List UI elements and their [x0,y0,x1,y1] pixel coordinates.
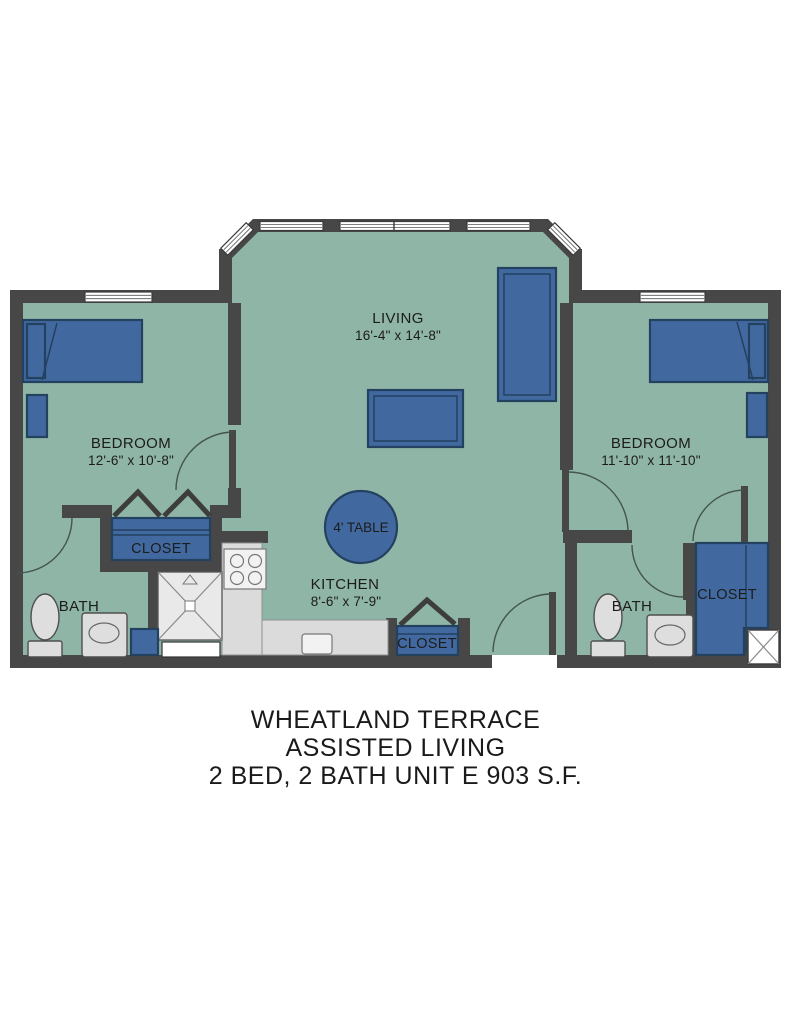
floor-plan-page: LIVING 16'-4" x 14'-8" BEDROOM 12'-6" x … [0,0,791,1024]
entry-threshold [492,655,557,672]
toilet-icon [28,594,62,657]
left-bath-door-leaf [10,518,17,575]
living-label: LIVING [372,310,424,327]
right-bath-door-leaf [683,543,690,600]
right-closet-label: CLOSET [697,587,757,603]
sofa [498,268,556,401]
right-bedroom-window [640,292,705,302]
right-bedroom-door-leaf [562,470,569,532]
property-type: ASSISTED LIVING [0,734,791,762]
left-nightstand [27,395,47,437]
unit-summary: 2 BED, 2 BATH UNIT E 903 S.F. [0,762,791,790]
shower-icon [158,572,222,640]
stove-icon [224,549,266,589]
living-window-2 [340,222,450,231]
right-bedroom-label: BEDROOM [611,435,691,452]
living-window-1 [260,222,323,231]
right-bath-label: BATH [612,598,653,615]
vanity-sink-icon [82,613,127,657]
right-closet-door-leaf [741,486,748,542]
entry-door-leaf [549,592,556,655]
living-window-3 [467,222,530,231]
left-bath-label: BATH [59,598,100,615]
loveseat [368,390,463,447]
floor-plan: LIVING 16'-4" x 14'-8" BEDROOM 12'-6" x … [0,0,791,700]
title-block: WHEATLAND TERRACE ASSISTED LIVING 2 BED,… [0,706,791,790]
right-bedroom-dims: 11'-10" x 11'-10" [601,453,700,468]
bath-cabinet [131,629,158,655]
property-name: WHEATLAND TERRACE [0,706,791,734]
left-bedroom-label: BEDROOM [91,435,171,452]
left-closet-label: CLOSET [131,541,191,557]
center-closet-label: CLOSET [397,636,457,652]
left-bedroom-window [85,292,152,302]
kitchen-sink-icon [302,634,332,654]
kitchen-dims: 8'-6" x 7'-9" [311,594,382,609]
left-bedroom-door-leaf [229,430,236,490]
shower-entry [162,642,220,657]
right-bed [650,320,768,382]
left-bedroom-dims: 12'-6" x 10'-8" [88,453,174,468]
living-dims: 16'-4" x 14'-8" [355,328,441,343]
mechanical-chase-icon [748,630,779,664]
kitchen-label: KITCHEN [311,576,380,593]
left-bed [23,320,142,382]
vanity-sink-icon [647,615,693,657]
table-label: 4' TABLE [333,520,388,535]
right-nightstand [747,393,767,437]
